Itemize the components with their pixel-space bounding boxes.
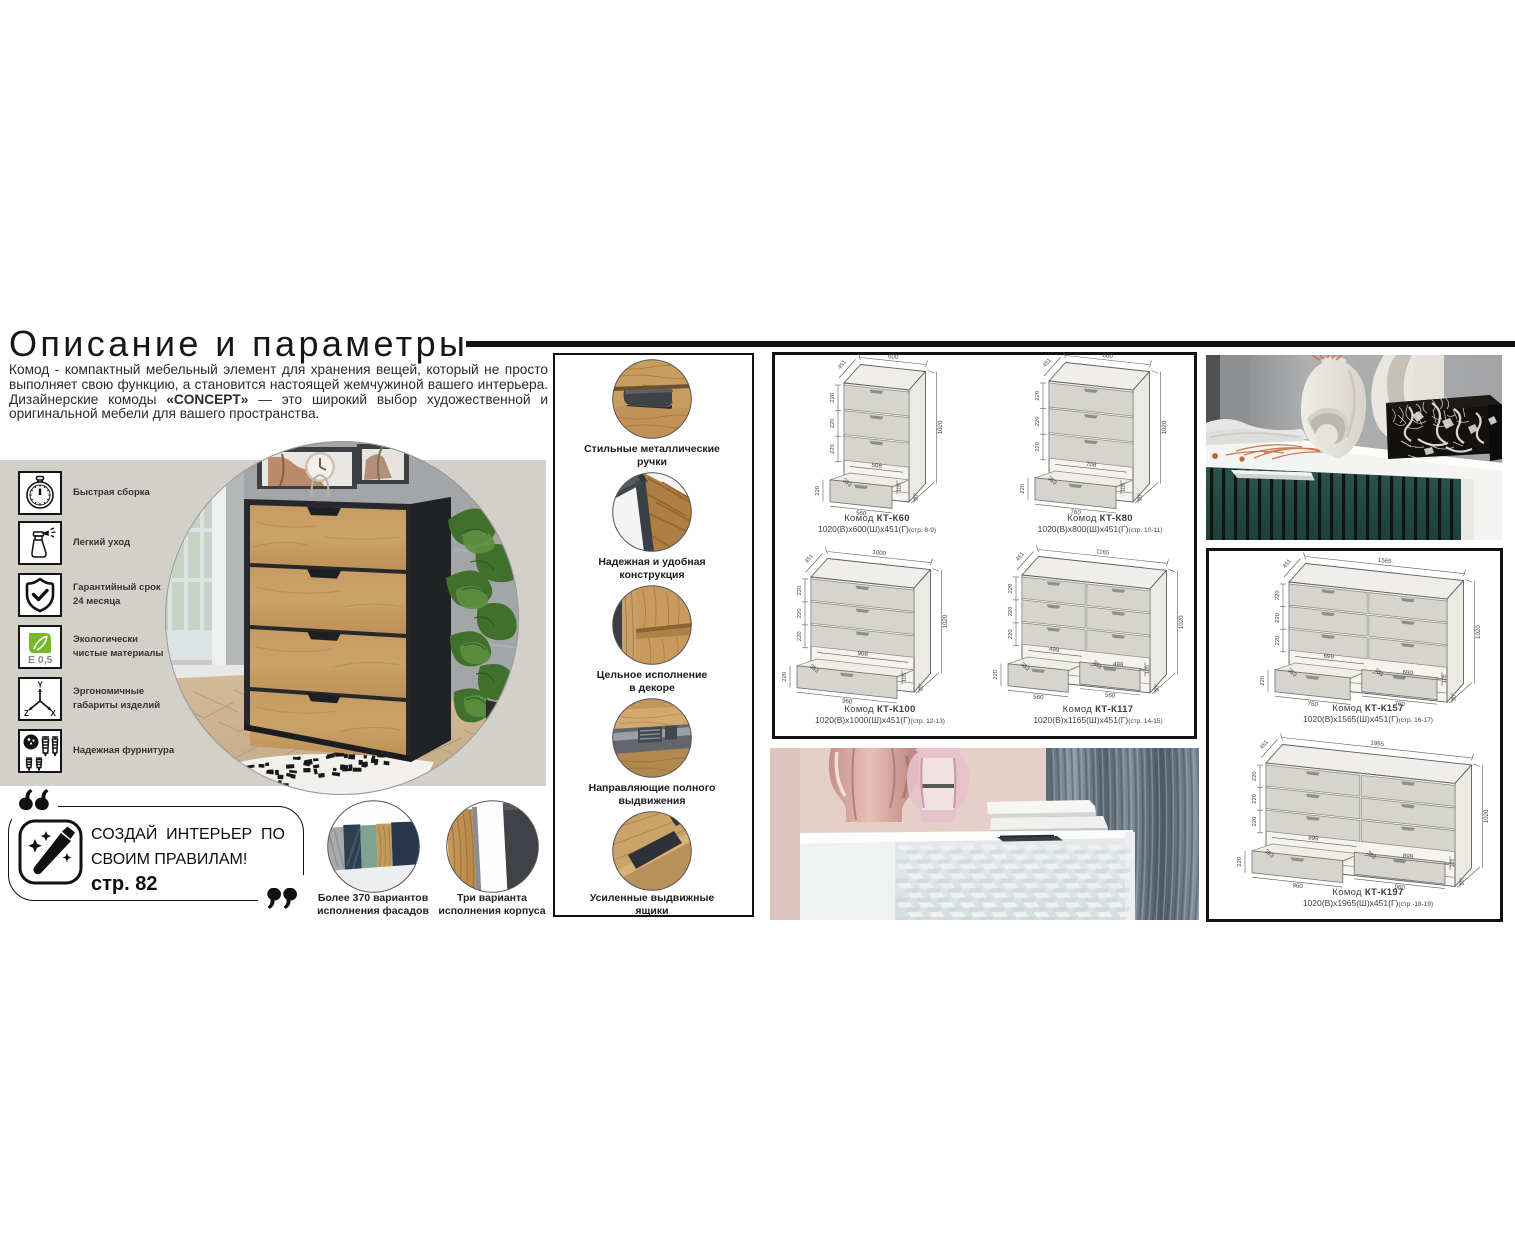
svg-text:1000: 1000 bbox=[872, 549, 887, 558]
svg-text:600: 600 bbox=[888, 353, 900, 361]
svg-text:105: 105 bbox=[1121, 483, 1127, 492]
svg-text:699: 699 bbox=[1402, 669, 1414, 677]
svg-text:220: 220 bbox=[1275, 636, 1281, 646]
svg-text:220: 220 bbox=[1260, 676, 1266, 686]
svg-text:220: 220 bbox=[1252, 771, 1258, 781]
svg-text:1020: 1020 bbox=[937, 420, 944, 434]
svg-text:220: 220 bbox=[1237, 857, 1243, 867]
svg-text:451: 451 bbox=[1282, 559, 1293, 570]
svg-text:220: 220 bbox=[1035, 391, 1041, 401]
svg-text:105: 105 bbox=[1450, 859, 1456, 868]
svg-text:220: 220 bbox=[1275, 613, 1281, 623]
svg-text:220: 220 bbox=[1035, 417, 1041, 427]
svg-text:220: 220 bbox=[1008, 584, 1014, 594]
svg-text:220: 220 bbox=[830, 444, 836, 454]
svg-text:220: 220 bbox=[1020, 484, 1026, 494]
svg-text:451: 451 bbox=[1015, 552, 1026, 563]
svg-text:1165: 1165 bbox=[1096, 548, 1111, 556]
svg-text:Z: Z bbox=[24, 709, 29, 718]
svg-text:220: 220 bbox=[1008, 629, 1014, 639]
svg-text:220: 220 bbox=[1035, 442, 1041, 452]
svg-text:1965: 1965 bbox=[1370, 739, 1385, 748]
svg-text:220: 220 bbox=[830, 393, 836, 403]
svg-text:708: 708 bbox=[1086, 461, 1098, 469]
svg-text:220: 220 bbox=[993, 670, 999, 680]
svg-text:1020: 1020 bbox=[1178, 615, 1185, 629]
svg-text:Y: Y bbox=[38, 681, 44, 690]
svg-text:451: 451 bbox=[1259, 740, 1270, 751]
svg-text:899: 899 bbox=[1308, 834, 1320, 842]
svg-text:1020: 1020 bbox=[1475, 625, 1482, 639]
svg-text:1020: 1020 bbox=[1483, 809, 1490, 823]
svg-text:90: 90 bbox=[1155, 686, 1161, 692]
svg-text:220: 220 bbox=[815, 486, 821, 496]
svg-text:1020: 1020 bbox=[1161, 420, 1168, 434]
svg-text:90: 90 bbox=[1138, 495, 1144, 501]
svg-text:451: 451 bbox=[804, 554, 815, 565]
svg-text:E 0,5: E 0,5 bbox=[28, 654, 53, 666]
svg-text:220: 220 bbox=[782, 672, 788, 682]
svg-text:90: 90 bbox=[1460, 879, 1466, 885]
svg-text:499: 499 bbox=[1049, 646, 1061, 654]
svg-text:699: 699 bbox=[1323, 653, 1335, 661]
svg-text:220: 220 bbox=[1252, 817, 1258, 827]
svg-text:560: 560 bbox=[1033, 693, 1045, 701]
svg-text:220: 220 bbox=[797, 631, 803, 641]
svg-text:220: 220 bbox=[830, 419, 836, 429]
svg-text:105: 105 bbox=[902, 673, 908, 682]
svg-text:220: 220 bbox=[1008, 607, 1014, 617]
svg-text:1565: 1565 bbox=[1377, 557, 1392, 566]
svg-text:105: 105 bbox=[1145, 665, 1151, 674]
svg-text:90: 90 bbox=[919, 685, 925, 691]
svg-text:90: 90 bbox=[1452, 695, 1458, 701]
svg-text:90: 90 bbox=[914, 495, 920, 501]
svg-text:220: 220 bbox=[797, 586, 803, 596]
svg-text:220: 220 bbox=[797, 609, 803, 619]
svg-text:105: 105 bbox=[1442, 674, 1448, 683]
svg-text:105: 105 bbox=[897, 483, 903, 492]
svg-text:508: 508 bbox=[871, 462, 883, 470]
svg-text:451: 451 bbox=[837, 360, 848, 371]
svg-text:560: 560 bbox=[1105, 692, 1117, 700]
svg-text:220: 220 bbox=[1275, 590, 1281, 600]
svg-text:908: 908 bbox=[857, 650, 869, 658]
svg-text:1020: 1020 bbox=[942, 614, 949, 628]
svg-text:800: 800 bbox=[1102, 352, 1114, 360]
svg-text:899: 899 bbox=[1402, 853, 1414, 861]
svg-text:499: 499 bbox=[1113, 661, 1125, 669]
svg-text:451: 451 bbox=[1042, 358, 1053, 369]
svg-text:X: X bbox=[51, 709, 57, 718]
svg-text:220: 220 bbox=[1252, 794, 1258, 804]
